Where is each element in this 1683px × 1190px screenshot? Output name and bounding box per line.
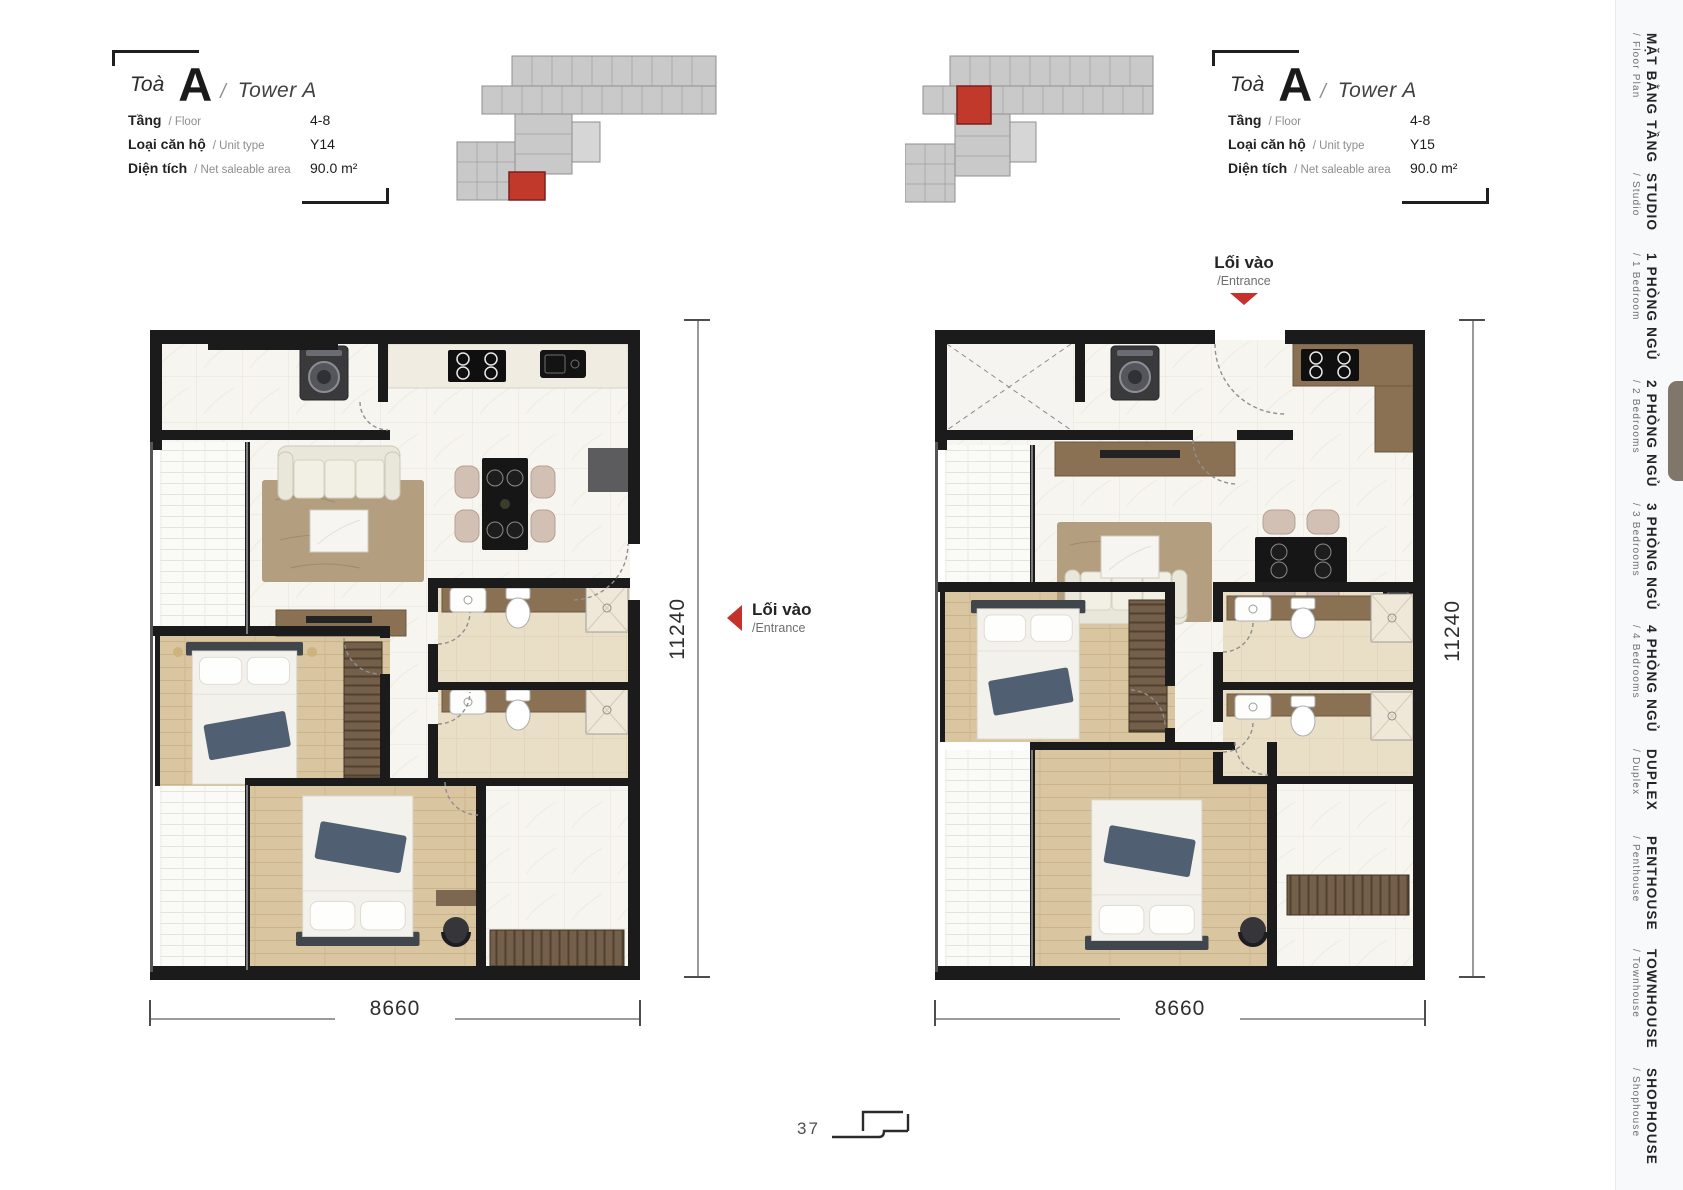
sidebar-nav: MẶT BẰNG TẦNG / Floor Plan STUDIO / Stud… — [1615, 0, 1683, 1190]
sidebar-item-duplex[interactable]: DUPLEX / Duplex — [1630, 749, 1659, 811]
row-area: Diện tích / Net saleable area 90.0 m² — [128, 160, 388, 184]
entrance-label-y15: Lối vào /Entrance — [1198, 253, 1290, 305]
page-number: 37 — [797, 1119, 820, 1140]
row-area: Diện tích / Net saleable area 90.0 m² — [1228, 160, 1488, 184]
sidebar-item-studio[interactable]: STUDIO / Studio — [1630, 173, 1659, 231]
washer-icon — [1111, 346, 1159, 400]
entrance-arrow-icon — [727, 605, 742, 631]
chair-icon — [1240, 917, 1266, 945]
toilet-icon — [1291, 696, 1315, 736]
unit-title: Toà A / Tower A — [130, 64, 317, 106]
row-unit-type: Loại căn hộ / Unit type Y15 — [1228, 136, 1488, 160]
bed-icon — [296, 796, 420, 946]
building-prefix: Toà — [130, 73, 164, 97]
shower-icon — [1371, 594, 1413, 642]
bath-sink-icon — [1235, 695, 1271, 719]
active-section-marker — [1668, 381, 1683, 481]
separator: / — [220, 81, 226, 104]
building-code: A — [1278, 64, 1312, 106]
unit-attributes: Tầng / Floor 4-8 Loại căn hộ / Unit type… — [128, 112, 388, 184]
stove-icon — [1301, 349, 1359, 381]
unit-info-y14: Toà A / Tower A Tầng / Floor 4-8 Loại că… — [100, 48, 400, 208]
bracket-decoration — [302, 188, 389, 204]
row-floor: Tầng / Floor 4-8 — [128, 112, 388, 136]
highlighted-unit-y14 — [509, 172, 545, 200]
key-plan-y14 — [452, 52, 720, 204]
floor-plan-y15 — [935, 330, 1425, 980]
page-footer: 37 — [797, 1108, 915, 1140]
dim-label: 8660 — [335, 997, 455, 1021]
sidebar-item-penthouse[interactable]: PENTHOUSE / Penthouse — [1630, 836, 1659, 931]
floor-plan-y14 — [150, 330, 640, 980]
row-floor: Tầng / Floor 4-8 — [1228, 112, 1488, 136]
bed-icon — [971, 600, 1085, 739]
key-plan-y15 — [905, 52, 1157, 204]
entrance-label-y14: Lối vào /Entrance — [727, 600, 812, 635]
wardrobe — [1287, 875, 1409, 915]
kitchen-counter — [388, 344, 628, 388]
toilet-icon — [506, 588, 530, 628]
dim-label: 11240 — [1441, 600, 1465, 662]
unit-title: Toà A / Tower A — [1230, 64, 1417, 106]
sidebar-item-shophouse[interactable]: SHOPHOUSE / Shophouse — [1630, 1068, 1659, 1165]
wardrobe — [490, 930, 624, 966]
dim-label: 11240 — [666, 598, 690, 660]
sidebar-item-4-bedrooms[interactable]: 4 PHÒNG NGỦ / 4 Bedrooms — [1630, 625, 1659, 733]
bed-icon — [1085, 800, 1209, 950]
washer-icon — [300, 346, 348, 400]
building-name-en: Tower A — [238, 79, 317, 103]
entrance-arrow-icon — [1230, 293, 1258, 305]
toilet-icon — [506, 690, 530, 730]
shower-icon — [586, 686, 628, 734]
bath-sink-icon — [450, 588, 486, 612]
shaft — [588, 448, 630, 492]
bath-sink-icon — [1235, 597, 1271, 621]
kitchen-sink-icon — [540, 350, 586, 378]
dim-label: 8660 — [1120, 997, 1240, 1021]
building-name-en: Tower A — [1338, 79, 1417, 103]
shower-icon — [1371, 692, 1413, 740]
sidebar-item-1-bedroom[interactable]: 1 PHÒNG NGỦ / 1 Bedroom — [1630, 253, 1659, 361]
toilet-icon — [1291, 598, 1315, 638]
coffee-table-icon — [1101, 536, 1159, 578]
sidebar-item-townhouse[interactable]: TOWNHOUSE / Townhouse — [1630, 949, 1659, 1049]
sidebar-item-2-bedrooms[interactable]: 2 PHÒNG NGỦ / 2 Bedrooms — [1630, 380, 1659, 488]
wardrobe — [1129, 600, 1167, 732]
chair-icon — [443, 917, 469, 945]
row-unit-type: Loại căn hộ / Unit type Y14 — [128, 136, 388, 160]
unit-info-y15: Toà A / Tower A Tầng / Floor 4-8 Loại că… — [1200, 48, 1500, 208]
separator: / — [1320, 81, 1326, 104]
stove-icon — [448, 350, 506, 382]
stair-logo-icon — [829, 1108, 915, 1140]
highlighted-unit-y15 — [957, 86, 991, 124]
coffee-table-icon — [310, 510, 368, 552]
bracket-decoration — [1402, 188, 1489, 204]
shower-icon — [586, 584, 628, 632]
sidebar-item-3-bedrooms[interactable]: 3 PHÒNG NGỦ / 3 Bedrooms — [1630, 503, 1659, 611]
wardrobe — [344, 642, 382, 778]
bed-icon — [186, 642, 303, 784]
building-code: A — [178, 64, 212, 106]
unit-attributes: Tầng / Floor 4-8 Loại căn hộ / Unit type… — [1228, 112, 1488, 184]
sofa-icon — [278, 446, 400, 500]
building-prefix: Toà — [1230, 73, 1264, 97]
bath-sink-icon — [450, 690, 486, 714]
tv-console — [1055, 442, 1235, 476]
sidebar-item-floor-plan[interactable]: MẶT BẰNG TẦNG / Floor Plan — [1630, 33, 1659, 163]
